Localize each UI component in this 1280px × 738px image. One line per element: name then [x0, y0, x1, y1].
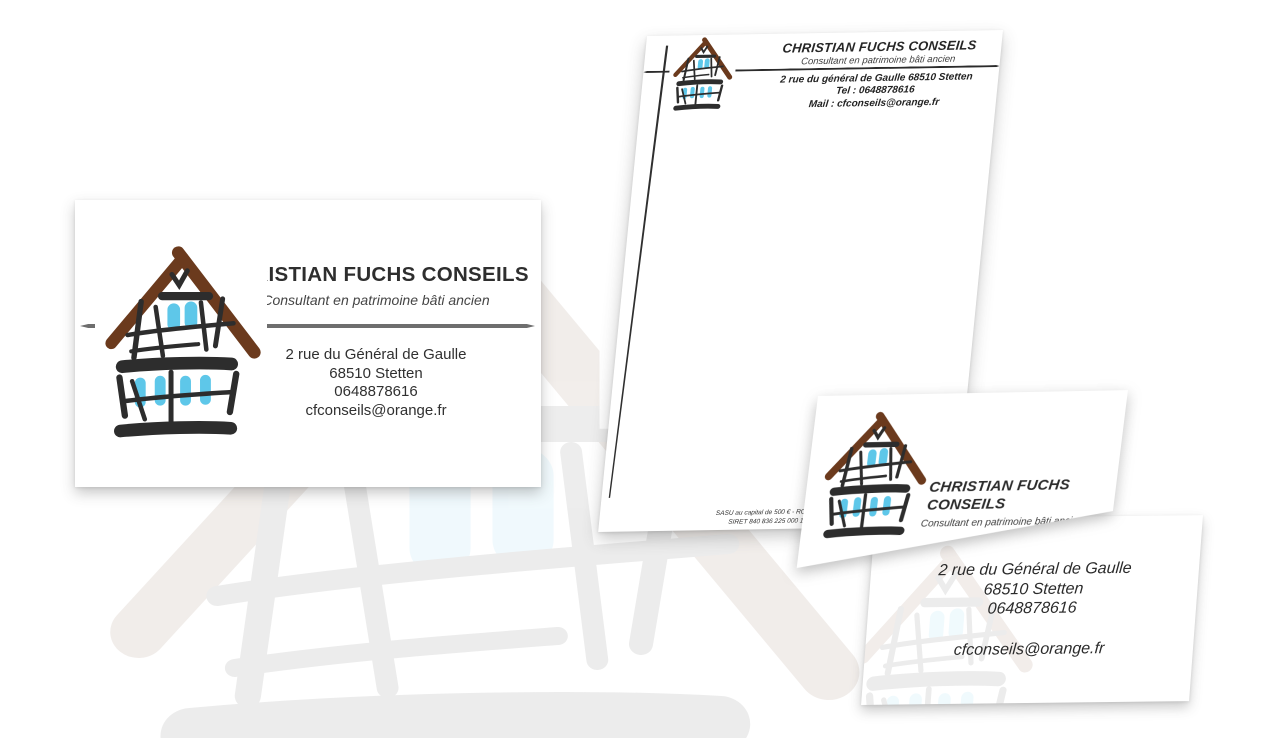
house-logo-icon: [665, 36, 738, 113]
stationery-mockup-canvas: CHRISTIAN FUCHS CONSEILS Consultant en p…: [0, 0, 1280, 738]
card-company-name: CHRISTIAN FUCHS CONSEILS: [926, 475, 1116, 514]
card-company-name-line-2: CONSEILS: [926, 493, 1114, 514]
business-card-front-angled: CHRISTIAN FUCHS CONSEILS Consultant en p…: [791, 390, 1128, 616]
letterhead-contact-block: 2 rue du général de Gaulle 68510 Stetten…: [751, 71, 999, 112]
business-card-front-main: CHRISTIAN FUCHS CONSEILS Consultant en p…: [75, 200, 541, 487]
card-back-email: cfconseils@orange.fr: [864, 638, 1193, 661]
business-card-front-angled-face: CHRISTIAN FUCHS CONSEILS Consultant en p…: [791, 390, 1128, 616]
card-tagline: Consultant en patrimoine bâti ancien: [920, 515, 1111, 530]
house-logo-icon: [95, 245, 267, 445]
